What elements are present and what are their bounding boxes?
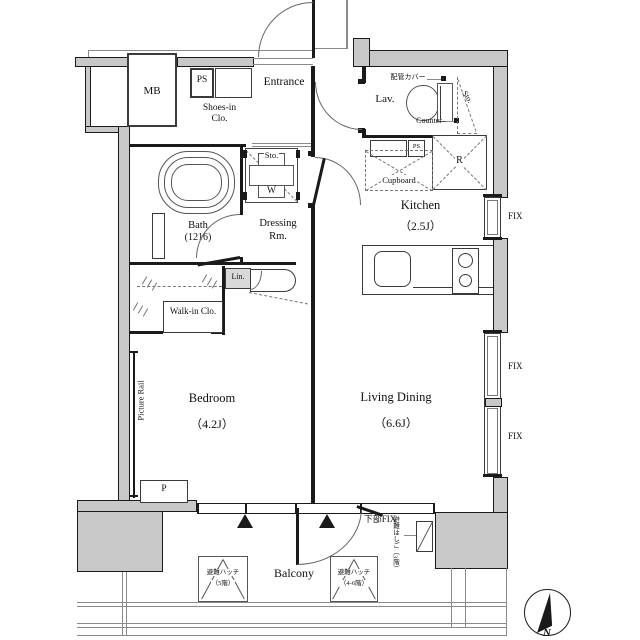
- bathtub-inner: [171, 164, 222, 201]
- walk-in-closet-label: Walk-in Clo.: [150, 307, 236, 316]
- entrance-sill-2: [253, 64, 313, 65]
- balcony-partition-2: [465, 568, 466, 627]
- balcony-line-5: [77, 635, 507, 636]
- hatch-46f-label-2: （4-6階）: [330, 581, 378, 588]
- closet-hatch-2b: [207, 277, 212, 285]
- bedroom-label: Bedroom: [172, 392, 252, 405]
- living-label: Living Dining: [340, 391, 452, 404]
- hatch-5f-box: [198, 556, 248, 602]
- stove-burner-1: [458, 253, 473, 268]
- stove-burner-2: [459, 274, 472, 287]
- counter-label: Counter: [411, 117, 447, 125]
- hatch-5f-label-2: （5階）: [199, 581, 247, 588]
- wall-hall-lower: [311, 204, 315, 503]
- bedroom-door-dashed: [249, 292, 308, 304]
- wall-right-3: [493, 477, 508, 513]
- wall-block-bottom-right: [435, 512, 508, 569]
- kitchen-label: Kitchen: [388, 199, 453, 212]
- window-cap-1a: [483, 194, 502, 197]
- upper-outline-stub: [346, 0, 348, 49]
- fix-label-1: FIX: [508, 212, 536, 221]
- balcony-line-2: [77, 606, 507, 607]
- washer-plus-horizontal: [249, 165, 294, 186]
- window-cap-1b: [483, 237, 502, 240]
- bedroom-size-label: （4.2J）: [172, 418, 252, 431]
- balcony-edge-right: [506, 568, 507, 635]
- floor-plan: MB PS Entrance Shoes-in Clo. Lav. 配管カバー …: [0, 0, 640, 640]
- dressing-label-2: Rm.: [247, 231, 309, 242]
- lavatory-label: Lav.: [368, 94, 402, 106]
- closet-hatch-3b: [138, 305, 143, 313]
- wall-closet-bottom-1: [130, 331, 163, 334]
- evac-ladder-leader: [404, 535, 416, 536]
- wall-top-left: [75, 57, 128, 67]
- track-div-5: [433, 503, 435, 514]
- wall-stub-lav: [353, 38, 370, 67]
- pipe-cover-dot: [441, 76, 446, 81]
- window-marker-bedroom: [237, 514, 253, 528]
- window-fix-2-inner-b: [487, 408, 498, 474]
- picture-rail-line: [133, 352, 135, 498]
- linen-label: Lin.: [225, 273, 251, 281]
- shoes-closet-label-1: Shoes-in: [192, 104, 247, 114]
- washer-label: W: [245, 187, 298, 197]
- wall-bath-top: [130, 144, 246, 147]
- pipe-cover-leader: [427, 79, 442, 80]
- balcony-line-3: [77, 623, 507, 624]
- kitchen-sink: [374, 251, 411, 287]
- hatch-46f-label-1: 避難ハッチ: [330, 570, 378, 577]
- wall-right-1: [493, 66, 508, 198]
- wall-top-right: [368, 50, 508, 67]
- hatch-5f-label-1: 避難ハッチ: [199, 570, 247, 577]
- wall-left-jog: [85, 126, 121, 133]
- closet-rail: [137, 286, 222, 287]
- genkan-step-2: [252, 146, 312, 147]
- evac-ladder-label: 避難はしご（3階）: [391, 514, 398, 574]
- storage-unit-label: Sto.: [245, 151, 298, 160]
- balcony-line-4: [77, 627, 507, 628]
- window-mullion: [485, 398, 502, 407]
- shoes-upper-cabinet: [215, 68, 252, 98]
- wall-left-upper: [85, 66, 91, 129]
- wall-right-2: [493, 238, 508, 333]
- balcony-divider-left-1: [122, 572, 123, 635]
- balcony-line-1: [77, 602, 507, 603]
- wall-left-main: [118, 126, 130, 502]
- track-div-2: [245, 503, 247, 514]
- kitchen-size-label: （2.5J）: [388, 221, 453, 233]
- window-cap-2b: [483, 474, 502, 477]
- lav-door-arc: [315, 82, 362, 130]
- shoes-closet-label-2: Clo.: [192, 115, 247, 125]
- meter-box-label: MB: [127, 86, 177, 98]
- track-div-1: [197, 503, 199, 514]
- closet-hatch-1a: [142, 276, 147, 284]
- fix-label-2: FIX: [508, 362, 536, 371]
- pipe-cover-label: 配管カバー: [388, 74, 428, 81]
- wall-block-bottom-left: [77, 511, 163, 572]
- closet-hatch-2a: [202, 274, 207, 282]
- compass-north-label: N: [536, 628, 558, 640]
- genkan-step-1: [252, 143, 312, 144]
- balcony-divider-left-2: [126, 572, 127, 635]
- living-size-label: （6.6J）: [340, 417, 452, 430]
- picture-rail-label: Picture Rail: [137, 365, 146, 435]
- entrance-sill-1: [253, 58, 313, 59]
- upper-outline-right: [313, 48, 347, 49]
- refrigerator-label: R: [432, 156, 487, 167]
- balcony-label: Balcony: [258, 567, 330, 580]
- closet-hatch-3a: [133, 302, 138, 310]
- pipe-shaft-top-label: PS: [190, 76, 214, 86]
- cupboard-label: Cupboard: [365, 176, 433, 185]
- closet-hatch-2c: [212, 280, 217, 288]
- pole-label: P: [140, 485, 188, 495]
- window-fix-1-inner: [487, 200, 498, 235]
- toilet-tank-line: [440, 86, 441, 119]
- picture-rail-tick-top: [129, 351, 138, 353]
- balcony-partition-1: [451, 568, 452, 627]
- wall-top-mid: [177, 57, 254, 67]
- wall-hall-upper: [311, 66, 315, 157]
- fix-label-3: FIX: [508, 432, 536, 441]
- window-cap-2a: [483, 330, 502, 333]
- hatch-46f-box: [330, 556, 378, 602]
- hall-door-hinge-top: [308, 151, 315, 156]
- window-fix-2-inner-a: [487, 336, 498, 396]
- entrance-label: Entrance: [255, 76, 313, 88]
- entrance-door-arc: [258, 2, 313, 57]
- dressing-label-1: Dressing: [247, 218, 309, 229]
- picture-rail-tick-bottom: [129, 495, 138, 497]
- closet-hatch-3c: [143, 308, 148, 316]
